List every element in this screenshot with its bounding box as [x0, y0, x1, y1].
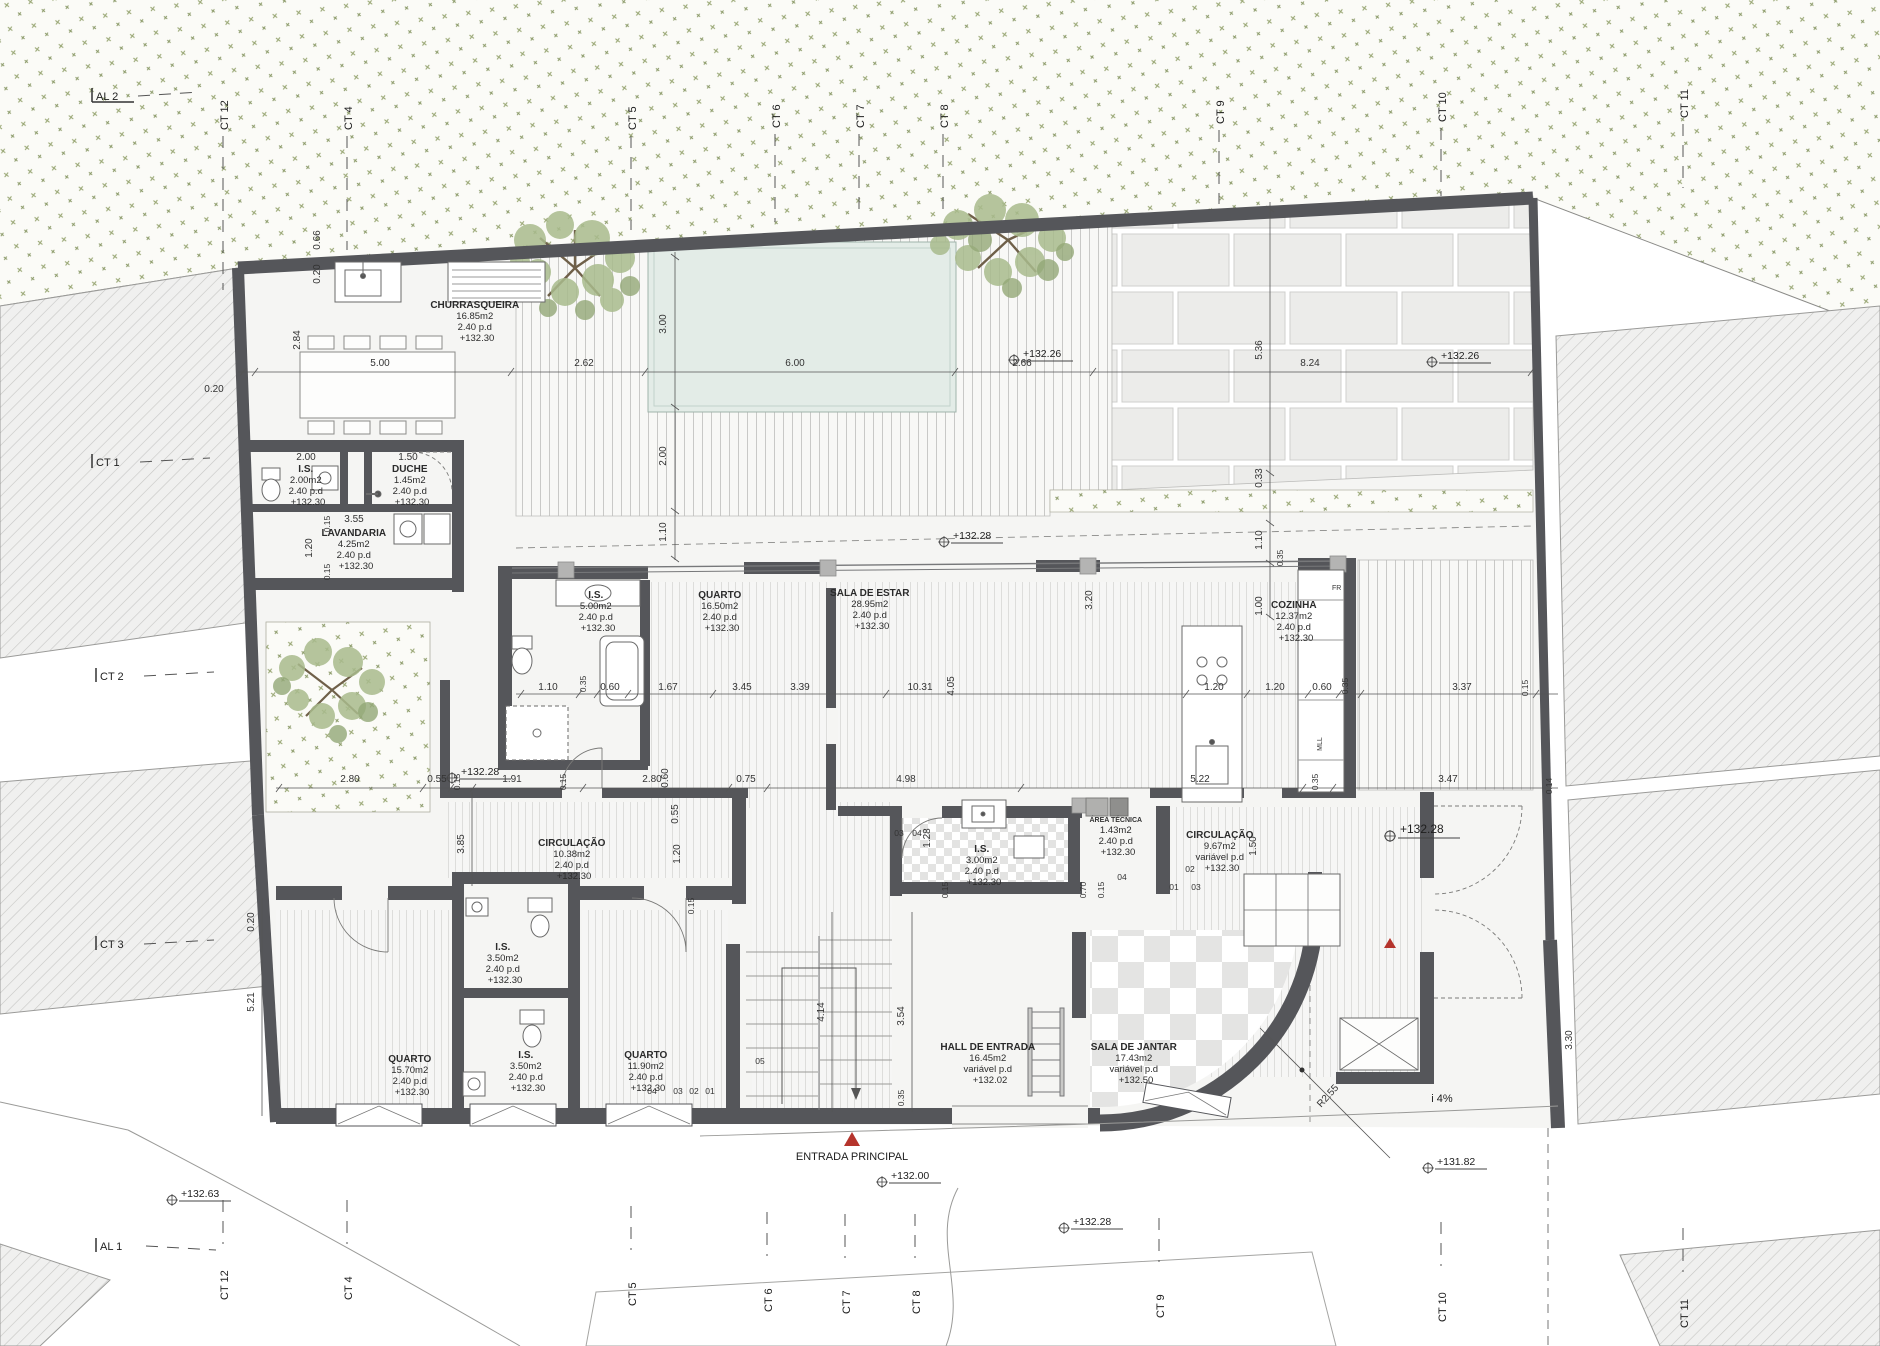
svg-text:+132.28: +132.28 — [953, 530, 991, 542]
svg-text:0.15: 0.15 — [686, 897, 696, 914]
svg-text:5.21: 5.21 — [246, 992, 257, 1012]
svg-text:0.70: 0.70 — [1078, 881, 1088, 898]
svg-text:CT 5: CT 5 — [627, 106, 639, 130]
svg-text:0.15: 0.15 — [940, 881, 950, 898]
svg-text:0.35: 0.35 — [896, 1089, 906, 1106]
entrance-label: ENTRADA PRINCIPAL — [796, 1151, 908, 1163]
svg-text:0.20: 0.20 — [312, 264, 323, 284]
svg-text:0.35: 0.35 — [1275, 549, 1285, 566]
wardrobe-closet — [1340, 1018, 1418, 1070]
svg-text:1.10: 1.10 — [538, 682, 558, 693]
svg-text:1.50: 1.50 — [1248, 836, 1259, 856]
svg-text:01: 01 — [1169, 882, 1179, 892]
svg-text:1.00: 1.00 — [1254, 596, 1265, 616]
svg-text:10.31: 10.31 — [907, 682, 932, 693]
svg-text:3.39: 3.39 — [790, 682, 810, 693]
svg-text:1.20: 1.20 — [672, 844, 683, 864]
svg-text:8.24: 8.24 — [1300, 358, 1320, 369]
svg-text:+132.28: +132.28 — [461, 766, 499, 778]
svg-text:0.33: 0.33 — [1254, 468, 1265, 488]
svg-text:0.35: 0.35 — [1340, 677, 1350, 694]
stone-pavers-patio — [1112, 196, 1533, 490]
svg-text:2.80: 2.80 — [340, 774, 360, 785]
appliance-label: MLL — [1317, 737, 1324, 751]
svg-text:AL 1: AL 1 — [100, 1241, 122, 1253]
svg-text:3.47: 3.47 — [1438, 774, 1458, 785]
svg-text:1.10: 1.10 — [658, 522, 669, 542]
floor-plan-drawing: CHURRASQUEIRA 16.85m2 2.40 p.d +132.30 I… — [0, 0, 1880, 1346]
svg-text:CT 7: CT 7 — [841, 1290, 853, 1314]
svg-text:+132.26: +132.26 — [1023, 348, 1061, 360]
slope-label: i 4% — [1431, 1093, 1453, 1105]
svg-text:2.84: 2.84 — [292, 330, 303, 350]
svg-text:04: 04 — [912, 828, 922, 838]
svg-text:CT 11: CT 11 — [1679, 1299, 1691, 1328]
room-label: QUARTO 16.50m2 2.40 p.d +132.30 — [698, 585, 746, 634]
road-area — [586, 1252, 1336, 1346]
svg-text:0.75: 0.75 — [736, 774, 756, 785]
svg-text:0.35: 0.35 — [578, 675, 588, 692]
svg-text:0.15: 0.15 — [322, 563, 332, 580]
svg-text:CT 10: CT 10 — [1437, 92, 1449, 122]
svg-text:5.36: 5.36 — [1254, 340, 1265, 360]
svg-text:02: 02 — [1185, 864, 1195, 874]
svg-text:04: 04 — [1117, 872, 1127, 882]
svg-text:3.37: 3.37 — [1452, 682, 1472, 693]
svg-text:CT 4: CT 4 — [343, 1276, 355, 1300]
svg-text:2.62: 2.62 — [574, 358, 594, 369]
svg-text:CT 6: CT 6 — [771, 104, 783, 128]
grill — [448, 262, 545, 302]
svg-text:CT 12: CT 12 — [219, 1270, 231, 1300]
svg-text:2.00: 2.00 — [658, 446, 669, 466]
svg-text:4.05: 4.05 — [946, 676, 957, 696]
svg-text:1.10: 1.10 — [1254, 530, 1265, 550]
svg-text:CT 9: CT 9 — [1215, 100, 1227, 124]
svg-text:0.15: 0.15 — [558, 773, 568, 790]
svg-text:0.15: 0.15 — [1520, 679, 1530, 696]
svg-text:0.20: 0.20 — [204, 384, 224, 395]
svg-text:CT 12: CT 12 — [219, 100, 231, 130]
room-label: QUARTO 15.70m2 2.40 p.d +132.30 — [388, 1049, 436, 1098]
neighbor-hatch-right-2 — [1568, 770, 1880, 1124]
svg-text:CT 9: CT 9 — [1155, 1294, 1167, 1318]
entrance-triangle — [844, 1132, 860, 1146]
svg-text:01: 01 — [705, 1086, 715, 1096]
svg-text:1.91: 1.91 — [502, 774, 522, 785]
svg-text:2.00: 2.00 — [296, 452, 316, 463]
svg-text:AL 2: AL 2 — [96, 91, 118, 103]
svg-text:1.20: 1.20 — [1204, 682, 1224, 693]
svg-text:0.60: 0.60 — [600, 682, 620, 693]
hedge-strip — [1050, 490, 1533, 512]
svg-text:CT 3: CT 3 — [100, 939, 124, 951]
technical-area-equipment — [1086, 798, 1128, 816]
fridge-label: FR — [1332, 585, 1341, 592]
svg-text:0.55: 0.55 — [427, 774, 447, 785]
svg-text:0.20: 0.20 — [246, 912, 257, 932]
svg-text:3.55: 3.55 — [344, 514, 364, 525]
svg-text:CT 7: CT 7 — [855, 104, 867, 128]
svg-text:3.54: 3.54 — [896, 1006, 907, 1026]
svg-text:05: 05 — [755, 1056, 765, 1066]
svg-text:1.67: 1.67 — [658, 682, 678, 693]
elevation-marker: +132.28 — [1058, 1216, 1123, 1234]
svg-text:0.15: 0.15 — [1096, 881, 1106, 898]
svg-text:1.20: 1.20 — [304, 538, 315, 558]
swimming-pool — [648, 242, 956, 412]
svg-text:0.14: 0.14 — [1544, 777, 1554, 794]
svg-text:1.28: 1.28 — [922, 828, 933, 848]
svg-text:3.85: 3.85 — [456, 834, 467, 854]
svg-text:03: 03 — [673, 1086, 683, 1096]
svg-text:02: 02 — [689, 1086, 699, 1096]
svg-text:5.00: 5.00 — [370, 358, 390, 369]
svg-text:3.30: 3.30 — [1564, 1030, 1575, 1050]
svg-text:6.00: 6.00 — [785, 358, 805, 369]
svg-text:CT 6: CT 6 — [763, 1288, 775, 1312]
svg-text:3.45: 3.45 — [732, 682, 752, 693]
svg-text:0.60: 0.60 — [1312, 682, 1332, 693]
svg-text:03: 03 — [1191, 882, 1201, 892]
svg-text:1.50: 1.50 — [398, 452, 418, 463]
svg-text:CT 4: CT 4 — [343, 106, 355, 130]
svg-text:1.20: 1.20 — [1265, 682, 1285, 693]
svg-text:04: 04 — [647, 1086, 657, 1096]
neighbor-hatch-right-3 — [1620, 1230, 1880, 1346]
svg-text:+132.28: +132.28 — [1073, 1216, 1111, 1228]
neighbor-hatch-right-1 — [1556, 306, 1880, 786]
svg-text:CT 8: CT 8 — [911, 1290, 923, 1314]
elevation-marker: +131.82 — [1422, 1156, 1487, 1174]
svg-text:CT 1: CT 1 — [96, 457, 120, 469]
svg-text:0.15: 0.15 — [322, 515, 332, 532]
floor-plan-canvas: CHURRASQUEIRA 16.85m2 2.40 p.d +132.30 I… — [0, 0, 1880, 1346]
svg-text:0.35: 0.35 — [1310, 773, 1320, 790]
neighbor-hatch-left-1 — [0, 268, 252, 658]
neighbor-hatch-left-2 — [0, 760, 268, 1014]
neighbor-hatch-left-3 — [0, 1244, 110, 1346]
svg-text:3.00: 3.00 — [658, 314, 669, 334]
room-label: DUCHE 1.45m2 2.40 p.d +132.30 — [392, 459, 432, 508]
garden-steps-east — [1358, 560, 1533, 790]
svg-text:0.55: 0.55 — [670, 804, 681, 824]
svg-text:+131.82: +131.82 — [1437, 1156, 1475, 1168]
elevation-marker: +132.00 — [876, 1170, 941, 1188]
svg-text:2.80: 2.80 — [642, 774, 662, 785]
svg-text:+132.28: +132.28 — [1400, 822, 1444, 836]
svg-text:CT 8: CT 8 — [939, 104, 951, 128]
svg-text:CT 10: CT 10 — [1437, 1292, 1449, 1322]
svg-text:+132.26: +132.26 — [1441, 350, 1479, 362]
svg-text:0.66: 0.66 — [312, 230, 323, 250]
laundry-machines — [394, 514, 450, 544]
svg-text:3.20: 3.20 — [1084, 590, 1095, 610]
svg-text:+132.63: +132.63 — [181, 1188, 219, 1200]
svg-text:4.98: 4.98 — [896, 774, 916, 785]
hall-cabinet — [1244, 874, 1340, 946]
svg-text:5.22: 5.22 — [1190, 774, 1210, 785]
svg-text:CT 5: CT 5 — [627, 1282, 639, 1306]
svg-text:CT 11: CT 11 — [1679, 89, 1691, 118]
svg-text:03: 03 — [894, 828, 904, 838]
svg-text:4.14: 4.14 — [816, 1002, 827, 1022]
svg-text:+132.00: +132.00 — [891, 1170, 929, 1182]
svg-text:CT 2: CT 2 — [100, 671, 124, 683]
elevation-marker: +132.63 — [166, 1188, 231, 1206]
